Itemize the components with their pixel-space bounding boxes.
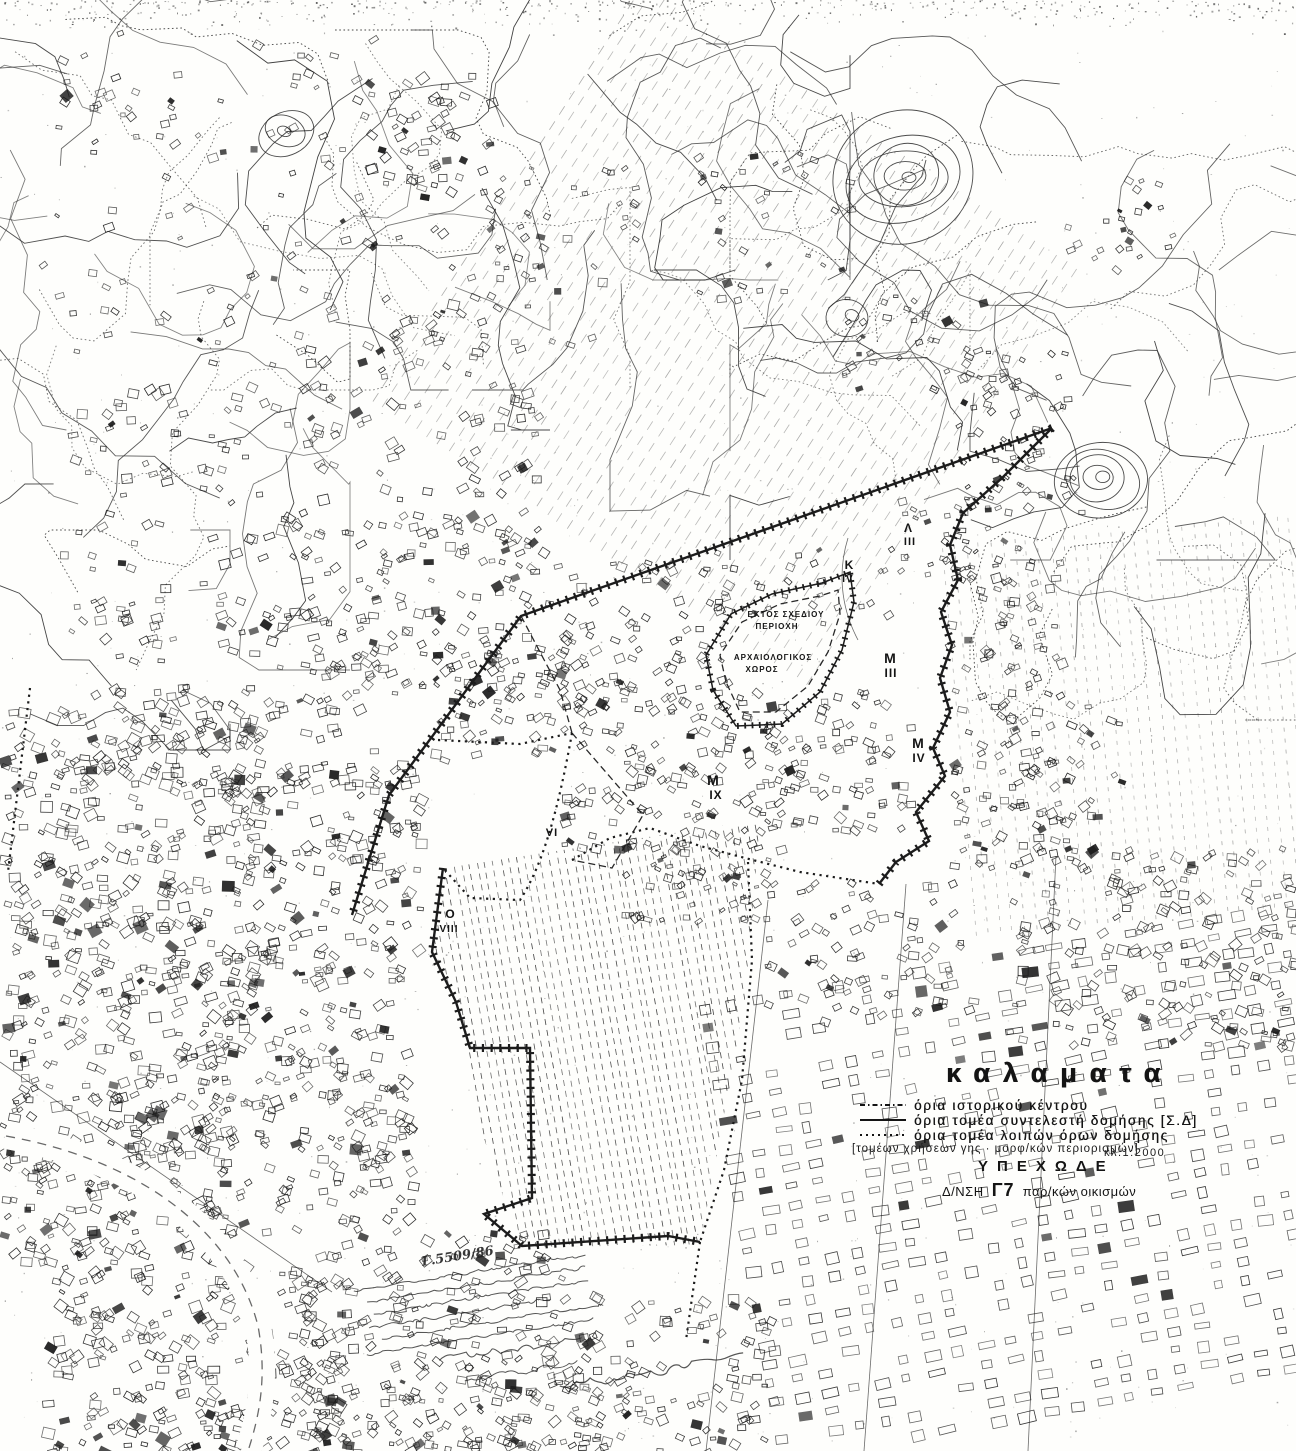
map-label: III	[904, 536, 916, 548]
map-label: ΑΡΧΑΙΟΛΟΓΙΚΟΣ	[734, 653, 812, 662]
map-label: III	[884, 666, 897, 680]
map-label: IV	[912, 751, 925, 765]
map-label: M	[912, 735, 924, 751]
map-label: VIII	[439, 924, 458, 935]
map-label: Λ	[904, 521, 912, 535]
map-label: IX	[709, 788, 722, 802]
map-label: ΠΕΡΙΟΧΗ	[755, 622, 798, 631]
map-label: IV	[842, 574, 853, 585]
map-label: ΧΩΡΟΣ	[745, 665, 778, 674]
map-label: VI	[546, 827, 558, 839]
map-drawing: ΛIIIKIVMIIIMIVMIXVIOVIIIΕΚΤΟΣ ΣΧΕΔΙΟΥΠΕΡ…	[0, 0, 1296, 1451]
map-label: O	[445, 907, 454, 921]
map-label: M	[884, 650, 896, 666]
map-label: K	[845, 558, 854, 572]
map-label: M	[707, 772, 719, 788]
scanned-map-page: ΛIIIKIVMIIIMIVMIXVIOVIIIΕΚΤΟΣ ΣΧΕΔΙΟΥΠΕΡ…	[0, 0, 1296, 1451]
map-label: ΕΚΤΟΣ ΣΧΕΔΙΟΥ	[748, 610, 825, 619]
